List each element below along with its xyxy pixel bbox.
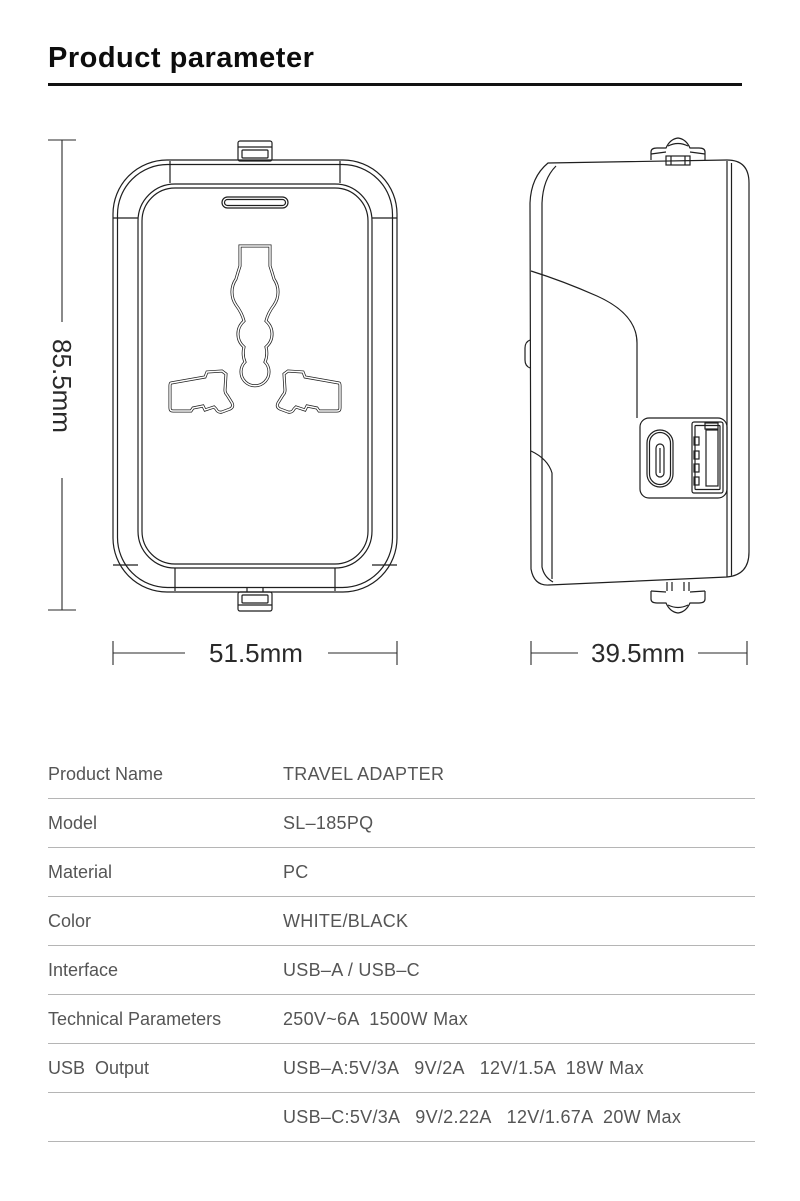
indicator-light-slot-inner [225, 200, 286, 206]
table-row: Interface USB–A / USB–C [48, 946, 755, 995]
side-left-inner-line [542, 166, 556, 582]
table-row: Model SL–185PQ [48, 799, 755, 848]
side-view-drawing [525, 138, 749, 613]
usb-a-port [692, 422, 723, 493]
front-face-plate-inner-line [142, 188, 368, 564]
spec-value: TRAVEL ADAPTER [283, 764, 444, 785]
side-slider-seam [531, 271, 637, 418]
universal-socket-hole [232, 246, 278, 386]
spec-value: PC [283, 862, 309, 883]
front-bottom-tab-inner [242, 595, 268, 603]
product-technical-drawing: 85.5mm 51.5mm 39.5mm [0, 0, 800, 700]
table-row: USB–C:5V/3A 9V/2.22A 12V/1.67A 20W Max [48, 1093, 755, 1142]
spec-label: Model [48, 813, 283, 834]
front-top-tab-inner [242, 150, 268, 158]
front-outer-shell-inner-line [118, 165, 393, 588]
spec-label: Interface [48, 960, 283, 981]
front-outer-shell [113, 160, 397, 592]
height-dimension-label: 85.5mm [47, 339, 77, 433]
spec-label: Technical Parameters [48, 1009, 283, 1030]
spec-label: Product Name [48, 764, 283, 785]
front-corner-ticks [170, 161, 340, 591]
usb-c-port [647, 430, 673, 487]
spec-value: SL–185PQ [283, 813, 373, 834]
prong-slot-left [170, 371, 233, 412]
side-button-bump [525, 340, 530, 368]
front-face-plate [138, 184, 372, 568]
front-parting-lines [113, 218, 397, 565]
table-row: Color WHITE/BLACK [48, 897, 755, 946]
spec-table: Product Name TRAVEL ADAPTER Model SL–185… [48, 750, 755, 1142]
side-bottom-knob [651, 582, 705, 613]
spec-value: WHITE/BLACK [283, 911, 408, 932]
table-row: USB Output USB–A:5V/3A 9V/2A 12V/1.5A 18… [48, 1044, 755, 1093]
spec-value: USB–A:5V/3A 9V/2A 12V/1.5A 18W Max [283, 1058, 644, 1079]
indicator-light-slot [222, 197, 288, 208]
table-row: Technical Parameters 250V~6A 1500W Max [48, 995, 755, 1044]
spec-label: Color [48, 911, 283, 932]
table-row: Material PC [48, 848, 755, 897]
prong-slot-right [277, 371, 340, 412]
side-width-dimension-label: 39.5mm [591, 638, 685, 668]
spec-value: USB–A / USB–C [283, 960, 420, 981]
table-row: Product Name TRAVEL ADAPTER [48, 750, 755, 799]
side-body-outline [530, 160, 749, 585]
spec-value: USB–C:5V/3A 9V/2.22A 12V/1.67A 20W Max [283, 1107, 681, 1128]
spec-label: Material [48, 862, 283, 883]
spec-value: 250V~6A 1500W Max [283, 1009, 468, 1030]
front-view-drawing [113, 141, 397, 611]
side-front-panel-lines [727, 161, 732, 577]
spec-label: USB Output [48, 1058, 283, 1079]
front-width-dimension-label: 51.5mm [209, 638, 303, 668]
